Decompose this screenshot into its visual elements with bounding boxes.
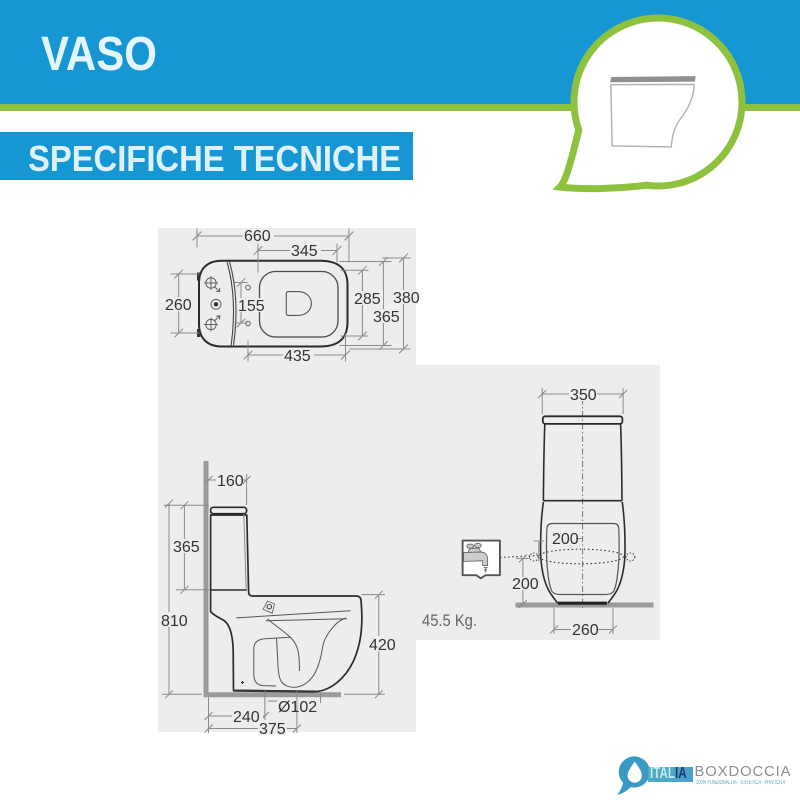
svg-text:200: 200 [512, 576, 539, 593]
svg-text:435: 435 [284, 348, 311, 365]
svg-text:420: 420 [369, 637, 396, 654]
svg-text:345: 345 [291, 243, 318, 260]
svg-text:380: 380 [393, 290, 420, 307]
svg-text:365: 365 [173, 539, 200, 556]
svg-text:260: 260 [572, 622, 599, 639]
svg-text:375: 375 [259, 721, 286, 738]
svg-text:155: 155 [238, 298, 265, 315]
svg-text:260: 260 [165, 297, 192, 314]
svg-text:200: 200 [552, 531, 579, 548]
svg-text:160: 160 [217, 473, 244, 490]
svg-text:365: 365 [373, 309, 400, 326]
svg-text:810: 810 [161, 613, 188, 630]
svg-text:240: 240 [233, 709, 260, 726]
svg-text:350: 350 [570, 387, 597, 404]
svg-text:660: 660 [244, 228, 271, 245]
svg-text:285: 285 [354, 291, 381, 308]
svg-text:45.5 Kg.: 45.5 Kg. [422, 611, 477, 630]
svg-text:Ø102: Ø102 [278, 699, 317, 716]
